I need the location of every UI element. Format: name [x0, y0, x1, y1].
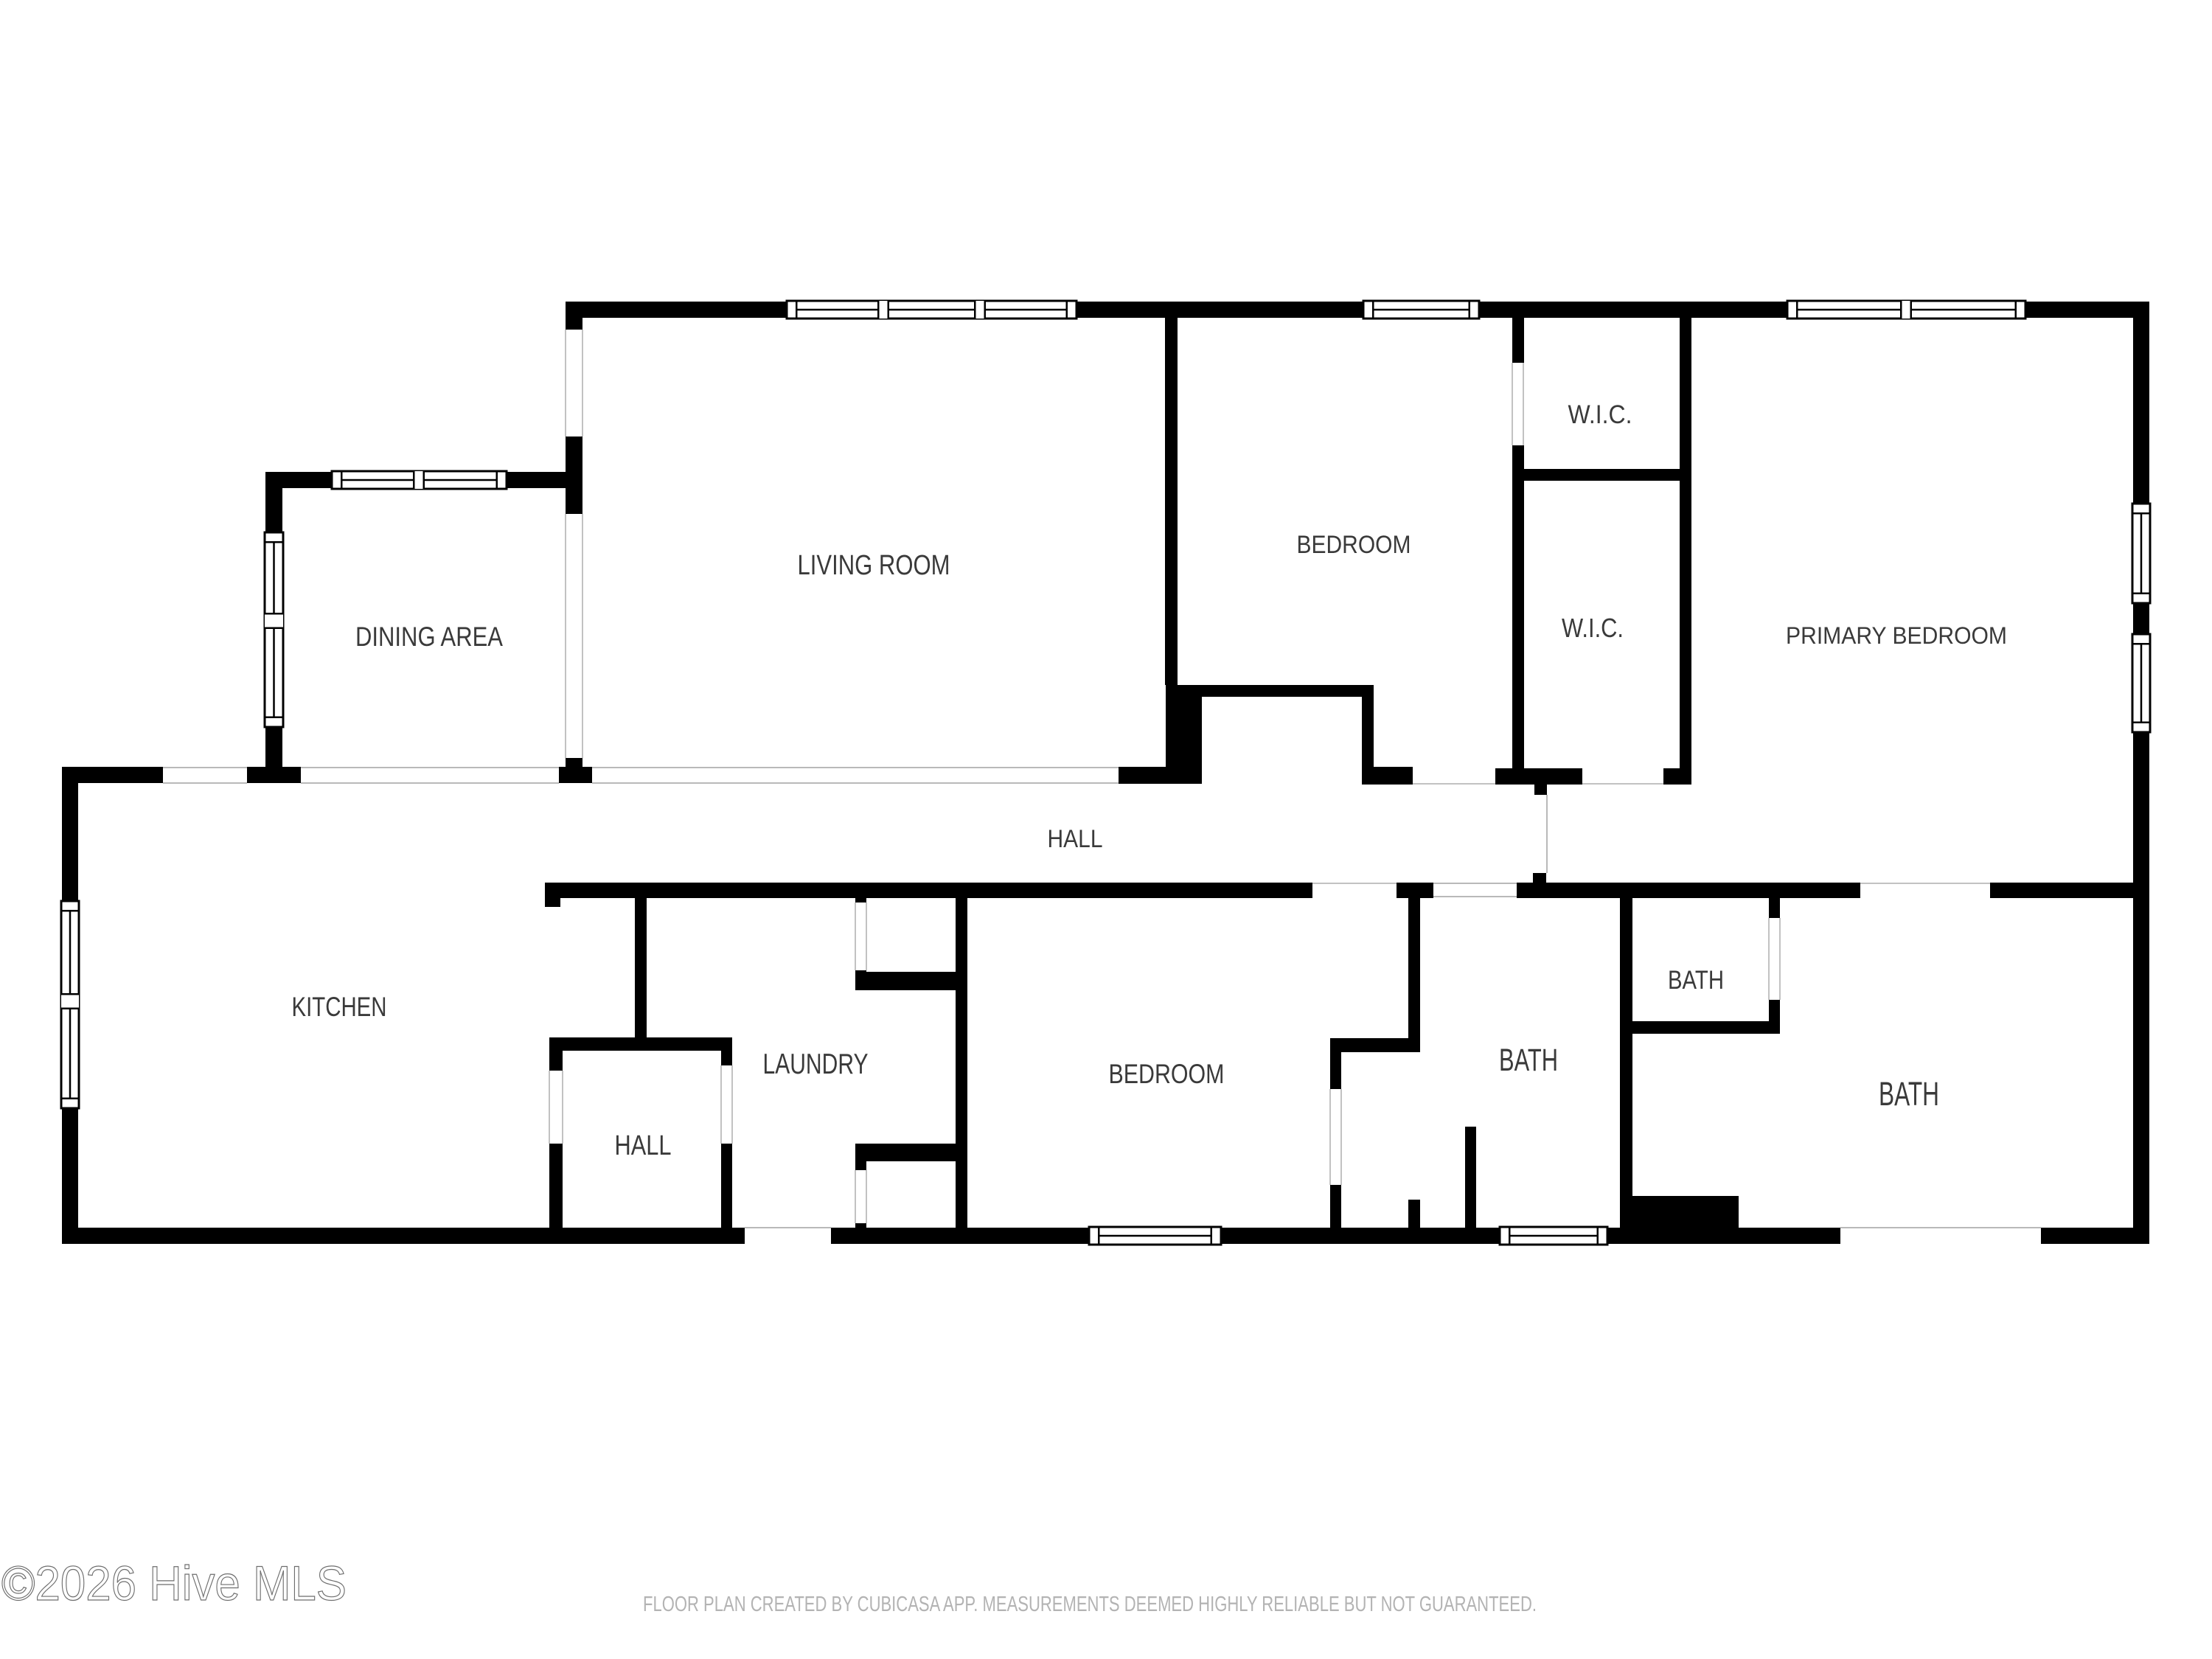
svg-text:BEDROOM: BEDROOM [1297, 531, 1411, 559]
svg-text:BATH: BATH [1499, 1043, 1558, 1078]
svg-text:©2026 Hive MLS: ©2026 Hive MLS [1, 1556, 347, 1610]
svg-text:W.I.C.: W.I.C. [1568, 400, 1632, 429]
svg-text:HALL: HALL [1048, 825, 1103, 853]
svg-text:BATH: BATH [1879, 1075, 1939, 1113]
svg-text:BATH: BATH [1668, 966, 1724, 995]
svg-text:KITCHEN: KITCHEN [292, 992, 387, 1022]
svg-text:LIVING ROOM: LIVING ROOM [798, 550, 950, 581]
svg-text:PRIMARY BEDROOM: PRIMARY BEDROOM [1786, 622, 2007, 649]
svg-text:FLOOR PLAN CREATED BY CUBICASA: FLOOR PLAN CREATED BY CUBICASA APP. MEAS… [643, 1593, 1537, 1616]
svg-text:HALL: HALL [615, 1130, 672, 1161]
svg-text:BEDROOM: BEDROOM [1109, 1059, 1225, 1089]
svg-text:DINING AREA: DINING AREA [355, 622, 503, 652]
svg-text:W.I.C.: W.I.C. [1562, 613, 1624, 643]
svg-text:LAUNDRY: LAUNDRY [763, 1048, 869, 1080]
